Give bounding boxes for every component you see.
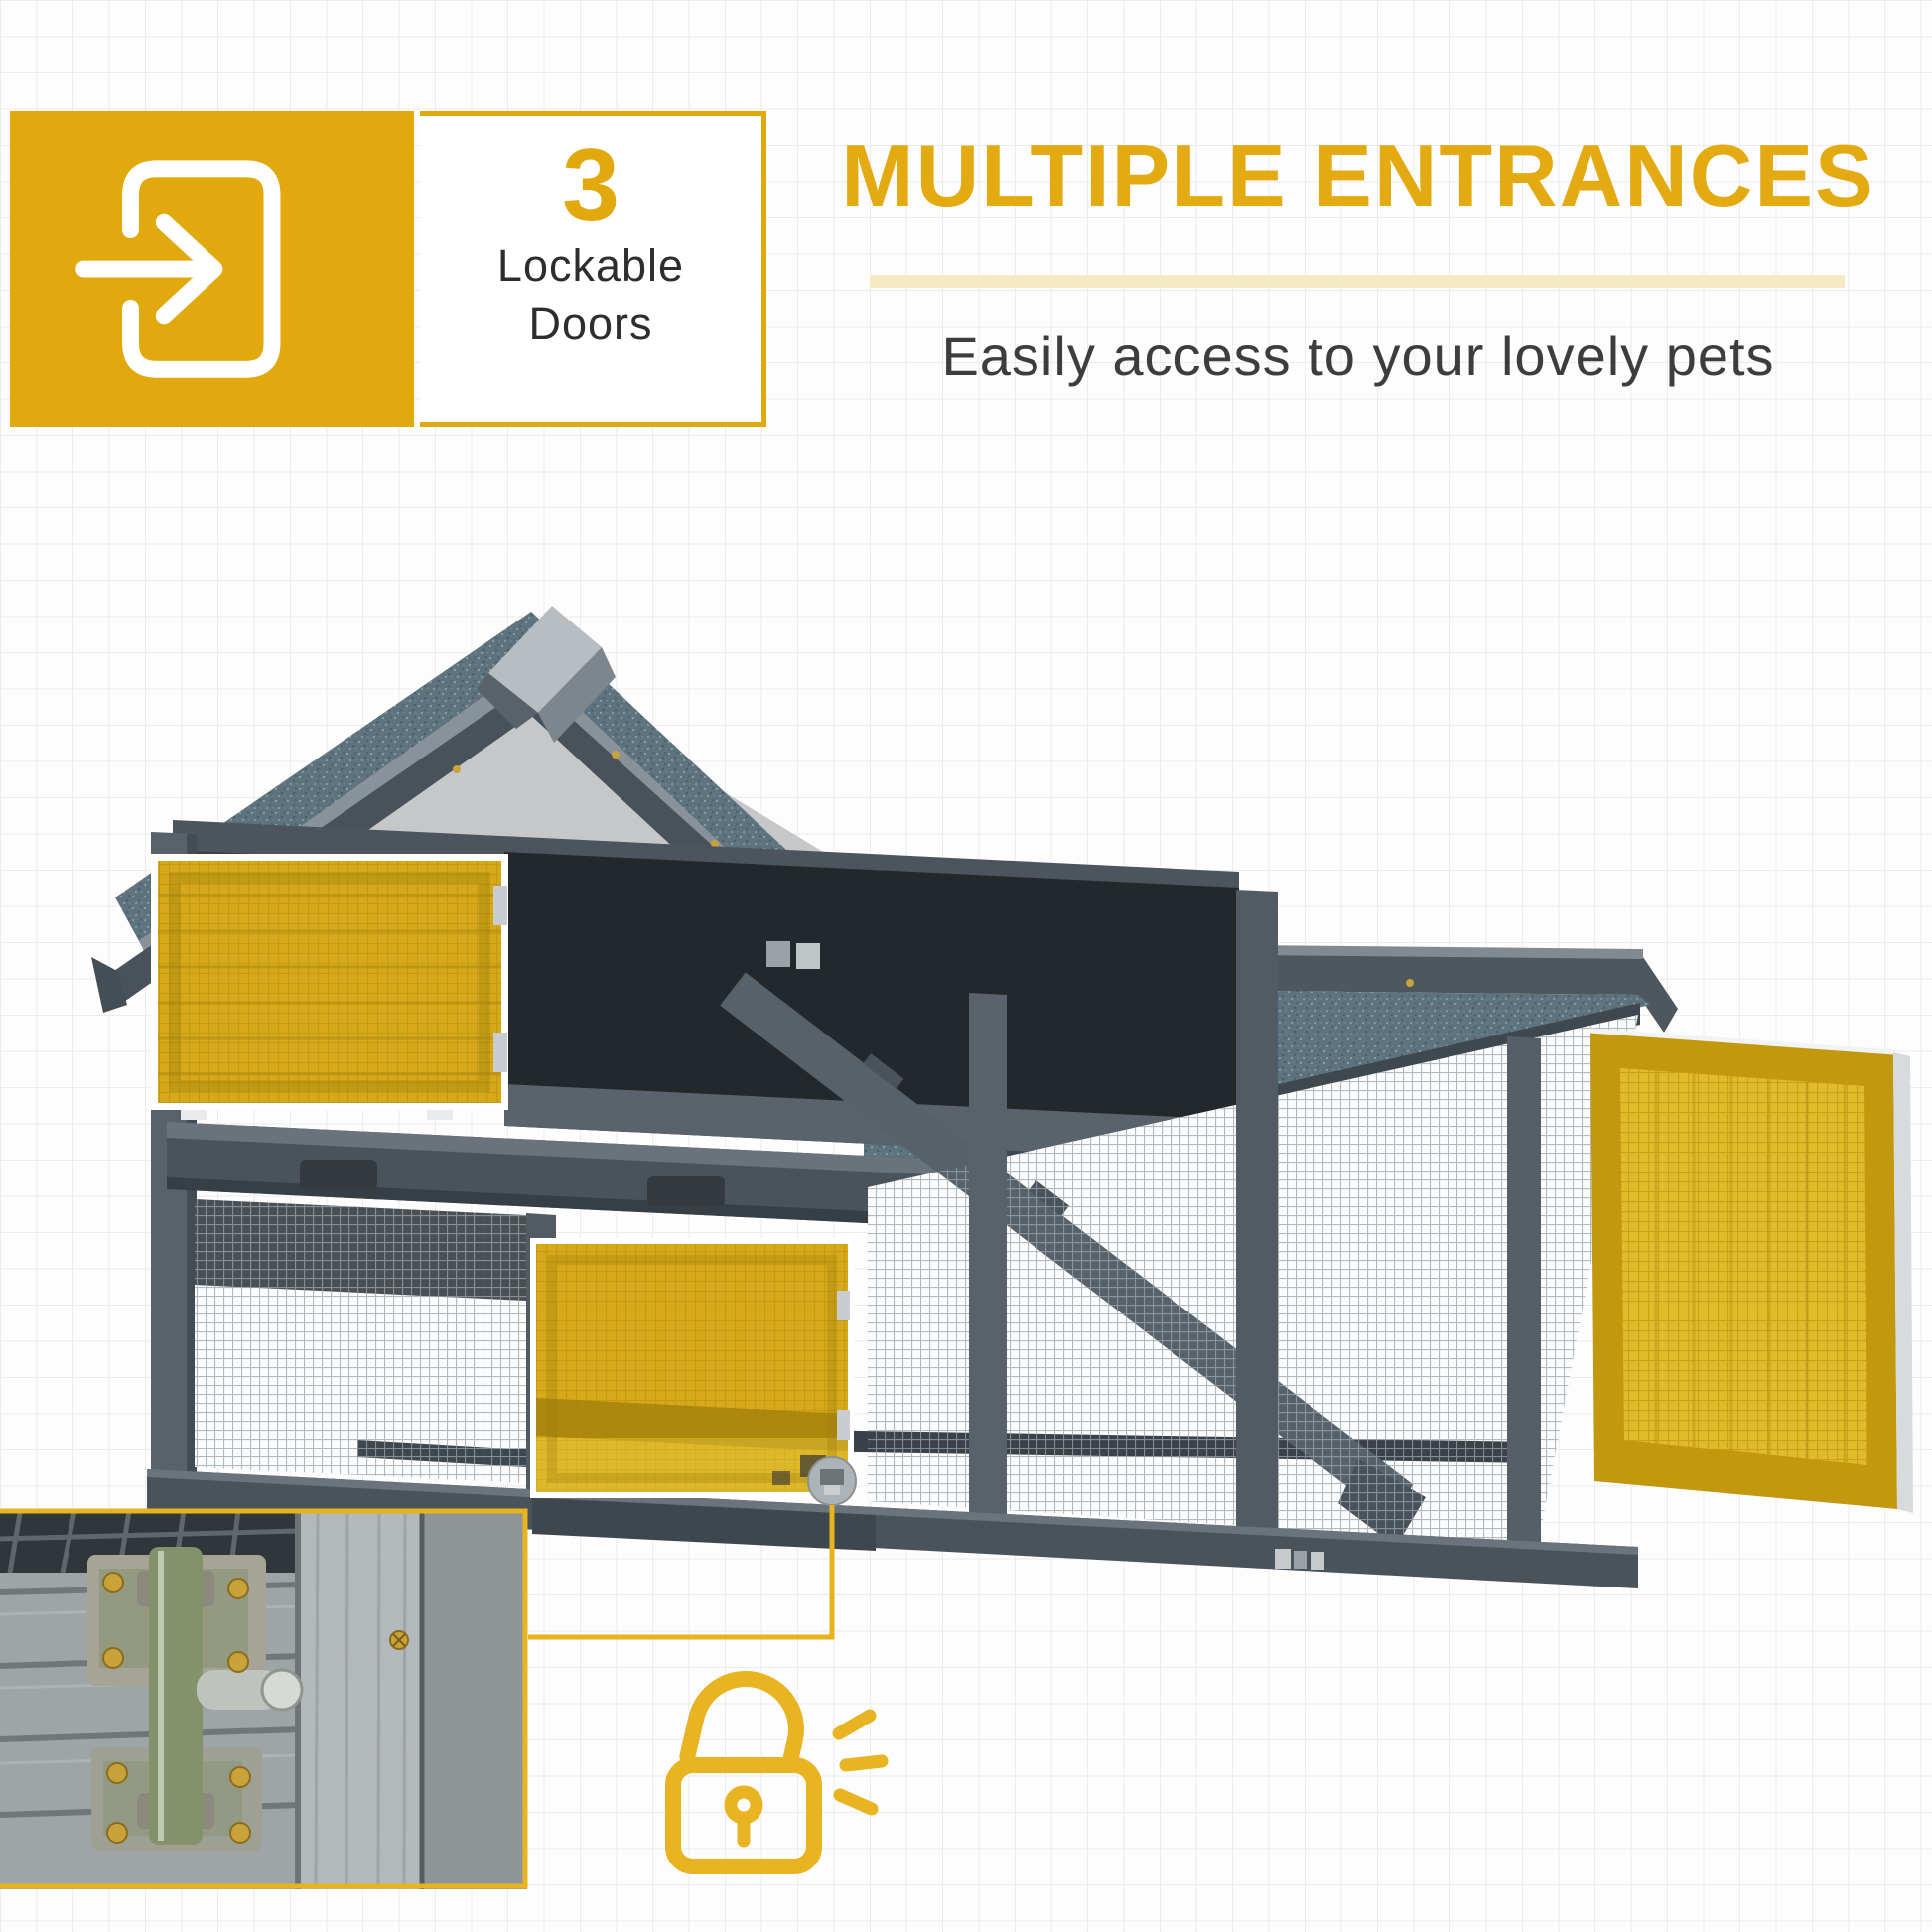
- latch-detail-inset: [0, 1509, 527, 1889]
- zoom-detail-marker: [808, 1457, 856, 1505]
- hutch-product-photo: [0, 0, 1932, 1932]
- upper-door-highlight: [151, 854, 508, 1120]
- upper-door-hinge: [493, 1033, 507, 1072]
- lower-left-mesh-bay: [195, 1199, 556, 1491]
- unlocked-padlock-icon: [673, 1669, 882, 1866]
- right-door-highlight: [1590, 1031, 1913, 1513]
- upper-door-hinge: [493, 886, 507, 925]
- tray-handle-right: [647, 1176, 725, 1206]
- tray-handle-left: [300, 1160, 377, 1189]
